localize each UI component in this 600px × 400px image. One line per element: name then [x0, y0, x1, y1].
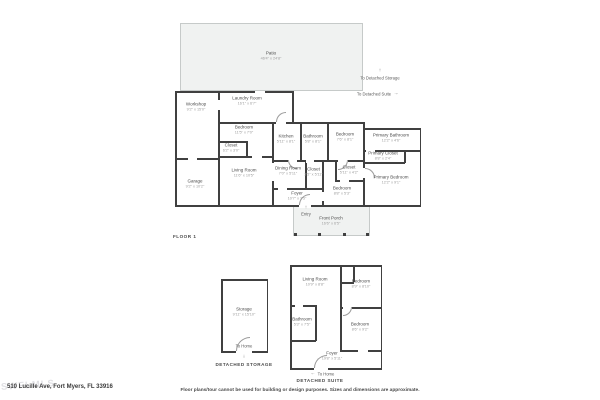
wall-segment — [267, 279, 269, 353]
room-label-suite-bathroom: Bathroom 5'3" x 7'5" — [292, 316, 312, 327]
room-dims: 11'5" x 7'0" — [235, 130, 253, 135]
room-label-suite-bedroom-b: Bedroom 8'6" x 9'2" — [351, 321, 369, 332]
wall-segment — [363, 128, 421, 130]
room-label-closet2: Closet 3'5" x 5'11" — [304, 166, 322, 177]
room-label-dining: Dining Room 7'0" x 5'11" — [275, 165, 301, 176]
door-gap — [188, 158, 197, 161]
wall-segment — [327, 122, 329, 161]
room-dims: 9'11" x 15'10" — [233, 312, 256, 317]
porch-post — [294, 233, 297, 236]
entry-label: Entry — [301, 212, 311, 217]
door-gap — [295, 305, 303, 308]
porch-post — [366, 233, 369, 236]
wall-segment — [175, 158, 219, 160]
room-label-suite-bedroom-a: Bedroom 8'9" x 8'10" — [352, 278, 371, 289]
wall-segment — [290, 305, 316, 307]
to-detached-storage-label: To Detached Storage — [360, 76, 399, 81]
room-label-front-porch: Front Porch 16'6" x 6'5" — [319, 215, 343, 226]
door-gap — [255, 91, 265, 94]
room-dims: 9'2" x 10'2" — [186, 184, 205, 189]
storage-down-arrow-icon: ↓ — [243, 355, 246, 360]
property-address: 510 Lucille Ave, Fort Myers, FL 33916 — [7, 384, 113, 390]
wall-segment — [290, 368, 382, 370]
room-label-suite-living: Living Room 10'9" x 8'8" — [302, 276, 327, 287]
wall-segment — [221, 279, 268, 281]
room-label-suite-foyer: Foyer 19'8" x 5'11" — [322, 350, 343, 361]
suite-to-home-label: To Home — [318, 371, 335, 376]
door-arc — [343, 307, 352, 316]
to-storage-up-arrow-icon: ↑ — [379, 69, 382, 74]
room-label-living: Living Room 11'6" x 10'5" — [231, 167, 256, 178]
room-label-closet1: Closet 6'2" x 3'0" — [223, 142, 240, 153]
room-label-workshop: Workshop 9'2" x 15'0" — [186, 101, 206, 112]
door-gap — [217, 100, 221, 110]
door-arc — [276, 112, 286, 122]
to-suite-right-arrow-icon: → — [394, 92, 399, 97]
wall-segment — [246, 141, 248, 157]
entry-up-arrow-icon: ↑ — [305, 206, 308, 211]
room-dims: 6'2" x 3'0" — [223, 148, 240, 153]
wall-segment — [315, 305, 317, 341]
room-dims: 19'8" x 5'11" — [322, 356, 343, 361]
room-dims: 16'6" x 6'5" — [319, 221, 343, 226]
room-dims: 8'8" x 2'4" — [368, 156, 398, 161]
room-dims: 9'2" x 15'0" — [186, 107, 206, 112]
room-dims: 5'8" x 8'1" — [303, 139, 323, 144]
wall-segment — [404, 150, 406, 163]
to-detached-suite-label: To Detached Suite — [357, 92, 391, 97]
floor-plan-canvas: Patio 46'4" x 24'8" Workshop 9'2" x 15'0… — [0, 0, 600, 400]
wall-segment — [221, 279, 223, 353]
wall-segment — [381, 265, 383, 370]
room-dims: 7'0" x 5'11" — [275, 171, 301, 176]
wall-segment — [218, 122, 364, 124]
door-gap — [271, 163, 275, 181]
room-label-laundry: Laundry Room 16'1" x 6'7" — [232, 95, 262, 106]
room-dims: 5'11" x 8'1" — [277, 139, 295, 144]
room-dims: 5'11" x 4'2" — [340, 170, 358, 175]
room-label-storage: Storage 9'11" x 15'10" — [233, 306, 256, 317]
room-label-patio: Patio 46'4" x 24'8" — [261, 50, 282, 61]
disclaimer-text: Floor plans/tour cannot be used for buil… — [180, 388, 419, 393]
room-dims: 8'8" x 5'3" — [333, 191, 351, 196]
door-gap — [306, 160, 314, 163]
wall-segment — [175, 205, 421, 207]
detached-storage-caption: DETACHED STORAGE — [215, 362, 272, 367]
room-label-bathroom1: Bathroom 5'8" x 8'1" — [303, 133, 323, 144]
wall-segment — [292, 91, 294, 123]
room-dims: 10'7" x 3'5" — [288, 196, 307, 201]
wall-segment — [290, 265, 382, 267]
wall-segment — [272, 160, 364, 162]
room-dims: 46'4" x 24'8" — [261, 56, 282, 61]
wall-segment — [175, 91, 293, 93]
wall-segment — [340, 307, 342, 351]
room-dims: 12'2" x 9'1" — [373, 180, 408, 185]
door-gap — [321, 192, 325, 201]
room-dims: 8'9" x 8'10" — [352, 284, 371, 289]
room-label-bedroom2: Bedroom 7'6" x 8'1" — [336, 131, 354, 142]
door-gap — [340, 180, 349, 183]
room-label-kitchen: Kitchen 5'11" x 8'1" — [277, 133, 295, 144]
room-dims: 7'6" x 8'1" — [336, 137, 354, 142]
room-dims: 11'6" x 10'5" — [231, 173, 256, 178]
porch-post — [318, 233, 321, 236]
room-dims: 16'1" x 6'7" — [232, 101, 262, 106]
door-gap — [358, 350, 368, 353]
room-label-primary-bedroom: Primary Bedroom 12'2" x 9'1" — [373, 174, 408, 185]
suite-left-arrow-icon: ← — [311, 371, 316, 376]
door-gap — [278, 188, 287, 191]
room-dims: 8'6" x 9'2" — [351, 327, 369, 332]
room-dims: 3'5" x 5'11" — [304, 172, 322, 177]
room-dims: 10'9" x 8'8" — [302, 282, 327, 287]
room-label-foyer: Foyer 10'7" x 3'5" — [288, 190, 307, 201]
wall-segment — [175, 91, 177, 206]
room-label-closet3: Closet 5'11" x 4'2" — [340, 164, 358, 175]
detached-suite-caption: DETACHED SUITE — [297, 378, 344, 383]
wall-segment — [363, 122, 365, 206]
room-label-bedroom1: Bedroom 11'5" x 7'0" — [235, 124, 253, 135]
room-dims: 12'2" x 4'6" — [373, 138, 409, 143]
room-dims: 5'3" x 7'5" — [292, 322, 312, 327]
wall-segment — [340, 265, 342, 308]
wall-segment — [300, 122, 302, 161]
porch-post — [343, 233, 346, 236]
room-label-primary-bathroom: Primary Bathroom 12'2" x 4'6" — [373, 132, 409, 143]
room-label-bedroom3: Bedroom 8'8" x 5'3" — [333, 185, 351, 196]
room-label-garage: Garage 9'2" x 10'2" — [186, 178, 205, 189]
room-label-primary-closet: Primary Closet 8'8" x 2'4" — [368, 150, 398, 161]
door-gap — [252, 156, 262, 159]
wall-segment — [290, 340, 316, 342]
floor1-caption: FLOOR 1 — [173, 234, 196, 239]
storage-to-home-label: To Home — [236, 344, 253, 349]
wall-segment — [363, 162, 405, 164]
wall-segment — [420, 128, 422, 206]
wall-segment — [335, 160, 337, 181]
